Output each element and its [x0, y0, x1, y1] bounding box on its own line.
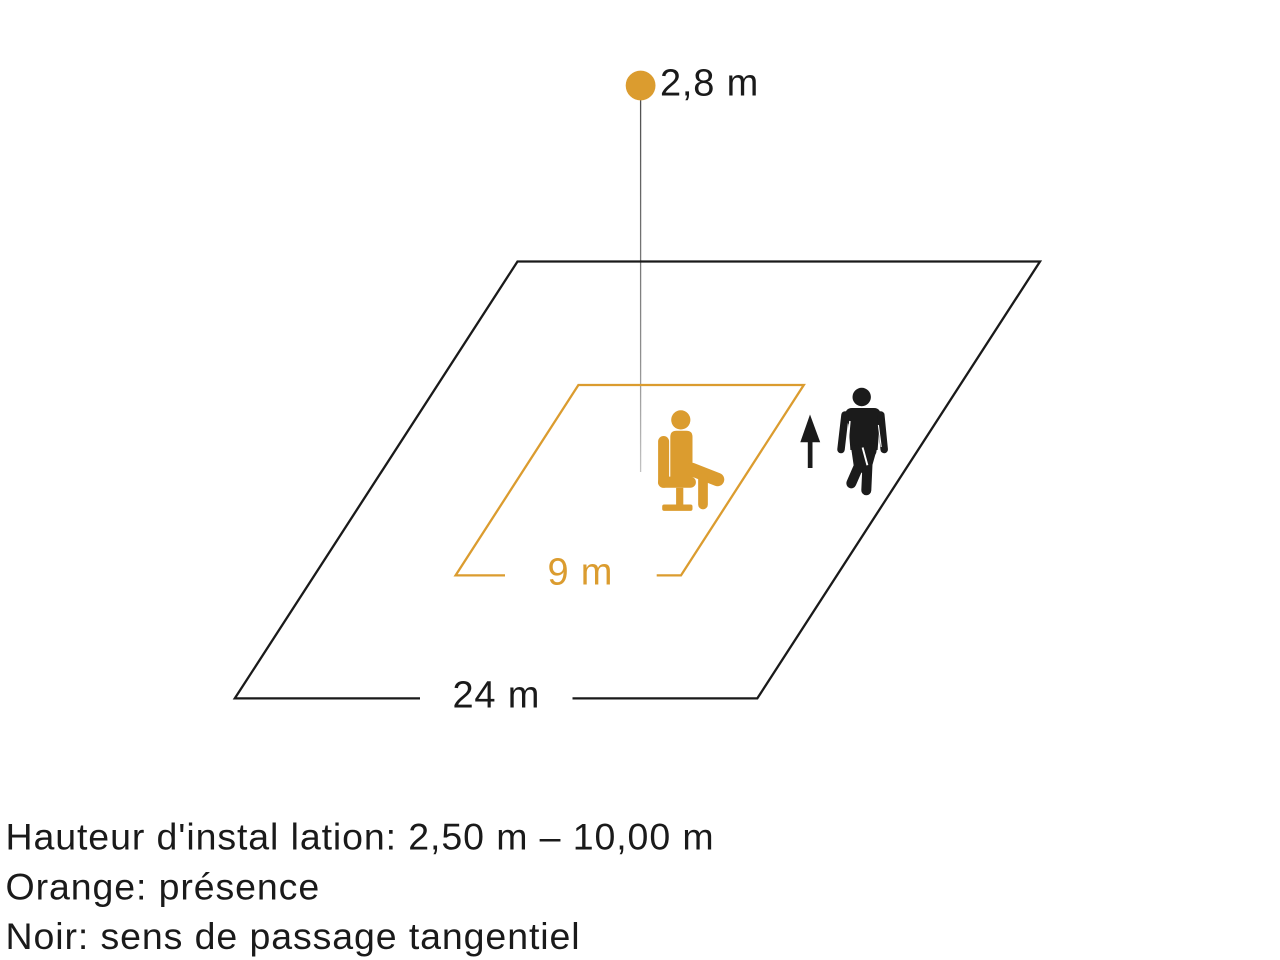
- svg-text:2,8 m: 2,8 m: [660, 63, 759, 105]
- svg-text:Orange: présence: Orange: présence: [6, 865, 321, 907]
- svg-text:24 m: 24 m: [453, 675, 541, 717]
- svg-text:9 m: 9 m: [548, 551, 614, 593]
- svg-text:Hauteur d'instal lation: 2,50: Hauteur d'instal lation: 2,50 m – 10,00 …: [6, 816, 715, 858]
- svg-text:Noir: sens de passage tangenti: Noir: sens de passage tangentiel: [6, 915, 581, 957]
